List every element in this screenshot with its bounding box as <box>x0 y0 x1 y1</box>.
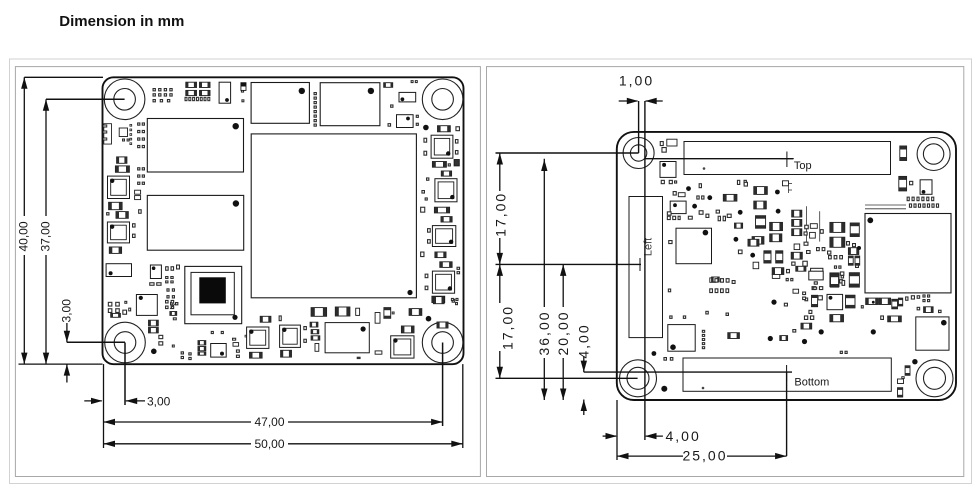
svg-text:20,00: 20,00 <box>555 310 571 355</box>
svg-text:36,00: 36,00 <box>536 310 552 355</box>
svg-text:4,00: 4,00 <box>666 428 701 444</box>
svg-text:Top: Top <box>794 160 812 172</box>
svg-text:25,00: 25,00 <box>682 448 727 464</box>
svg-text:4,00: 4,00 <box>576 323 592 358</box>
svg-text:Dimension in mm: Dimension in mm <box>59 13 184 30</box>
svg-text:37,00: 37,00 <box>39 221 53 251</box>
svg-text:3,00: 3,00 <box>147 395 171 409</box>
svg-text:17,00: 17,00 <box>500 305 516 350</box>
svg-text:50,00: 50,00 <box>254 437 284 451</box>
svg-text:3,00: 3,00 <box>60 299 74 323</box>
svg-text:Bottom: Bottom <box>794 377 829 389</box>
svg-text:47,00: 47,00 <box>254 415 284 429</box>
svg-text:40,00: 40,00 <box>17 221 31 251</box>
svg-text:17,00: 17,00 <box>493 192 509 237</box>
svg-text:1,00: 1,00 <box>619 72 654 88</box>
